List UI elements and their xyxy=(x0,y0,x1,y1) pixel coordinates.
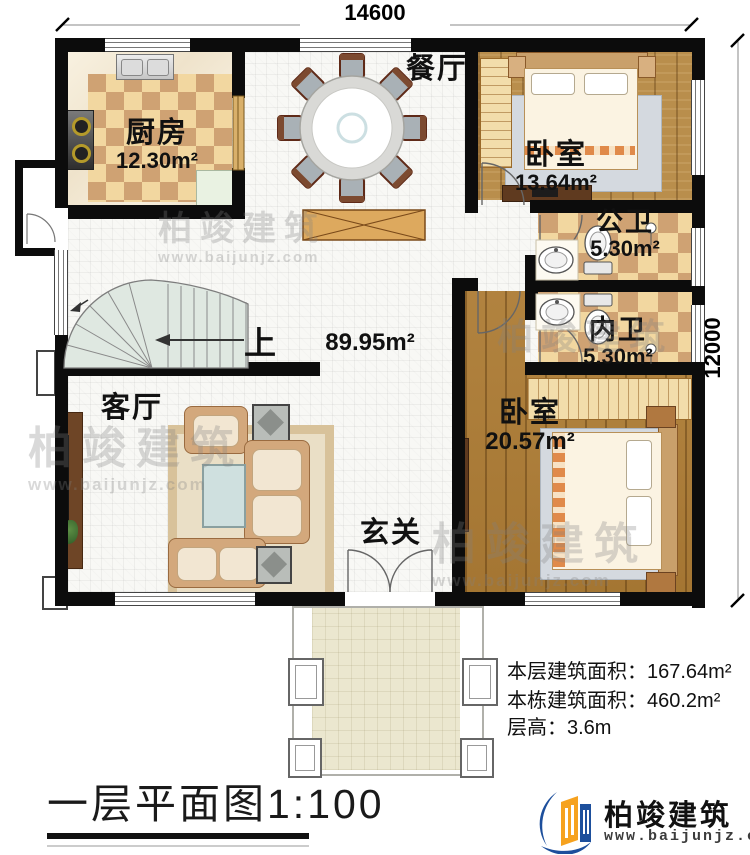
wall-stairs-south xyxy=(55,362,320,376)
public-bath-name: 公卫 xyxy=(575,208,675,237)
kitchen-area: 12.30m² xyxy=(107,149,207,173)
bedroom2-nightstand-bottom xyxy=(646,572,676,594)
living-sofa-right xyxy=(244,440,310,544)
bedroom1-label: 卧室13.64m² xyxy=(506,140,606,195)
wall-bath-west-a xyxy=(525,255,538,280)
brand-logo-icon xyxy=(533,788,599,854)
bedroom2-pillow-top xyxy=(626,440,652,490)
public-bath-window xyxy=(691,228,705,286)
wall-bedroom2-north xyxy=(452,278,478,291)
living-loveseat-bottom xyxy=(168,538,266,588)
bedroom1-nightstand-right xyxy=(638,56,656,78)
wall-kitchen-south xyxy=(55,205,245,219)
public-bath-area: 5.30m² xyxy=(575,237,675,261)
bedroom1-area: 13.64m² xyxy=(506,171,606,195)
porch-column-right-upper xyxy=(462,658,498,706)
bedroom1-pillow-right xyxy=(584,73,628,95)
stat-floor-area: 本层建筑面积：167.64m² xyxy=(507,655,732,684)
kitchen-name: 厨房 xyxy=(107,118,207,149)
stairs-window xyxy=(54,250,68,335)
stat-building-area-value: 460.2m² xyxy=(647,690,720,712)
wall-kitchen-east-upper xyxy=(232,52,245,98)
title-underline-light xyxy=(47,845,309,847)
stat-floor-area-value: 167.64m² xyxy=(647,661,732,683)
living-corner-table-bottom xyxy=(256,546,292,584)
bedroom1-pillow-left xyxy=(531,73,575,95)
porch-column-right-lower xyxy=(460,738,494,778)
foyer-name: 玄关 xyxy=(341,518,441,549)
stat-storey-height-value: 3.6m xyxy=(567,717,611,739)
stat-storey-height-label: 层高： xyxy=(507,717,567,739)
stat-building-area: 本栋建筑面积：460.2m² xyxy=(507,684,720,713)
kitchen-sink xyxy=(116,54,174,80)
bedroom2-label: 卧室20.57m² xyxy=(475,398,585,455)
living-window xyxy=(115,592,255,606)
stat-storey-height: 层高：3.6m xyxy=(507,711,611,740)
living-corner-table-top xyxy=(252,404,290,442)
sofa-cushion-1 xyxy=(252,449,302,491)
sofa-cushion-2 xyxy=(252,495,302,537)
public-bath-label: 公卫5.30m² xyxy=(575,208,675,261)
wall-bath-divider xyxy=(525,280,692,292)
dining-name: 餐厅 xyxy=(387,54,487,85)
foyer-label: 玄关 xyxy=(341,518,441,549)
wall-kitchen-east-lower xyxy=(232,168,245,219)
private-bath-label: 内卫5.30m² xyxy=(568,316,668,369)
dimension-top: 14600 xyxy=(300,0,450,26)
bedroom2-name: 卧室 xyxy=(475,398,585,429)
dining-label: 餐厅 xyxy=(387,54,487,85)
bedroom2-pillow-bottom xyxy=(626,496,652,546)
private-bath-area: 5.30m² xyxy=(568,345,668,369)
dining-window xyxy=(300,38,411,52)
bedroom1-window xyxy=(691,80,705,175)
dimension-right: 12000 xyxy=(700,288,726,408)
bedroom2-nightstand-top xyxy=(646,406,676,428)
plan-title: 一层平面图1:100 xyxy=(47,770,385,830)
dimension-right-line xyxy=(731,34,744,607)
entrance-opening xyxy=(345,592,435,606)
living-name: 客厅 xyxy=(82,393,182,424)
living-coffee-table xyxy=(202,464,246,528)
stairs-up-label: 上 xyxy=(240,326,280,361)
porch-column-left-upper xyxy=(288,658,324,706)
stat-building-area-label: 本栋建筑面积： xyxy=(507,690,647,712)
kitchen-label: 厨房12.30m² xyxy=(107,118,207,173)
wall-bedroom2-west xyxy=(452,291,465,595)
porch-floor xyxy=(312,608,460,770)
left-bump-opening xyxy=(55,208,68,252)
armchair-cushion xyxy=(193,415,239,447)
kitchen-fridge xyxy=(196,170,234,206)
loveseat-cushion-2 xyxy=(219,547,259,581)
bedroom2-window xyxy=(525,592,620,606)
left-pilaster xyxy=(36,350,56,396)
living-armchair-top xyxy=(184,406,248,454)
wall-bedroom1-south-a xyxy=(465,200,478,213)
title-underline xyxy=(47,833,309,839)
central-area-label: 89.95m² xyxy=(310,330,430,356)
wall-bath-west-b xyxy=(525,292,538,320)
stat-floor-area-label: 本层建筑面积： xyxy=(507,661,647,683)
living-label: 客厅 xyxy=(82,393,182,424)
kitchen-stove xyxy=(66,110,94,170)
kitchen-window xyxy=(105,38,190,52)
private-bath-name: 内卫 xyxy=(568,316,668,345)
brand-url: www.baijunjz.com xyxy=(604,828,750,845)
bedroom2-area: 20.57m² xyxy=(475,429,585,455)
floor-plan-page: 14600 12000 餐厅 厨房12.30m² 卧室13.64m² 公卫5.3… xyxy=(0,0,750,855)
bedroom1-name: 卧室 xyxy=(506,140,606,171)
loveseat-cushion-1 xyxy=(177,547,217,581)
